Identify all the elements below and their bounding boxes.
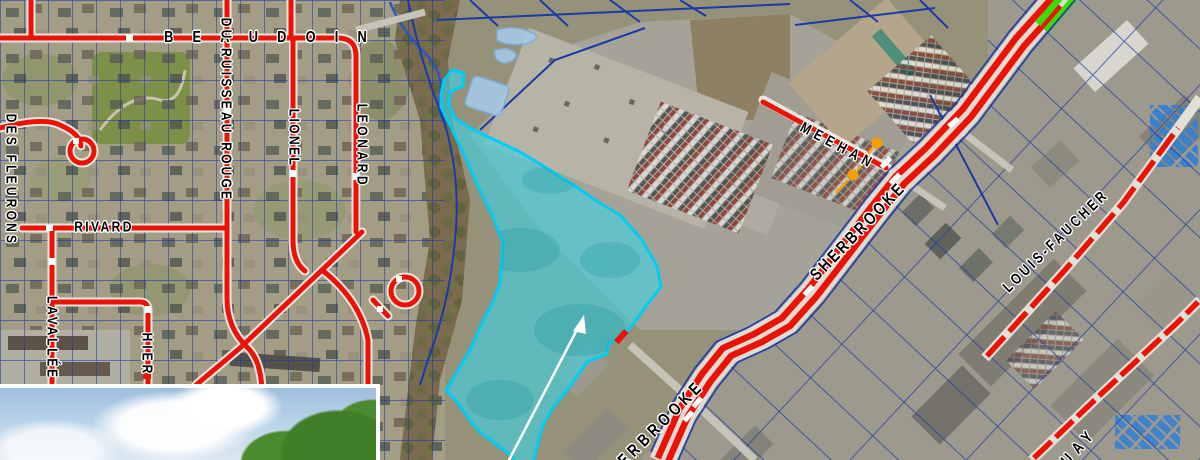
photo-inset[interactable] [0, 384, 380, 460]
map-screenshot: BEAUDOINDU RUISSEAU ROUGELIONELLEONARDRI… [0, 0, 1200, 460]
red-junction-square [143, 371, 151, 379]
